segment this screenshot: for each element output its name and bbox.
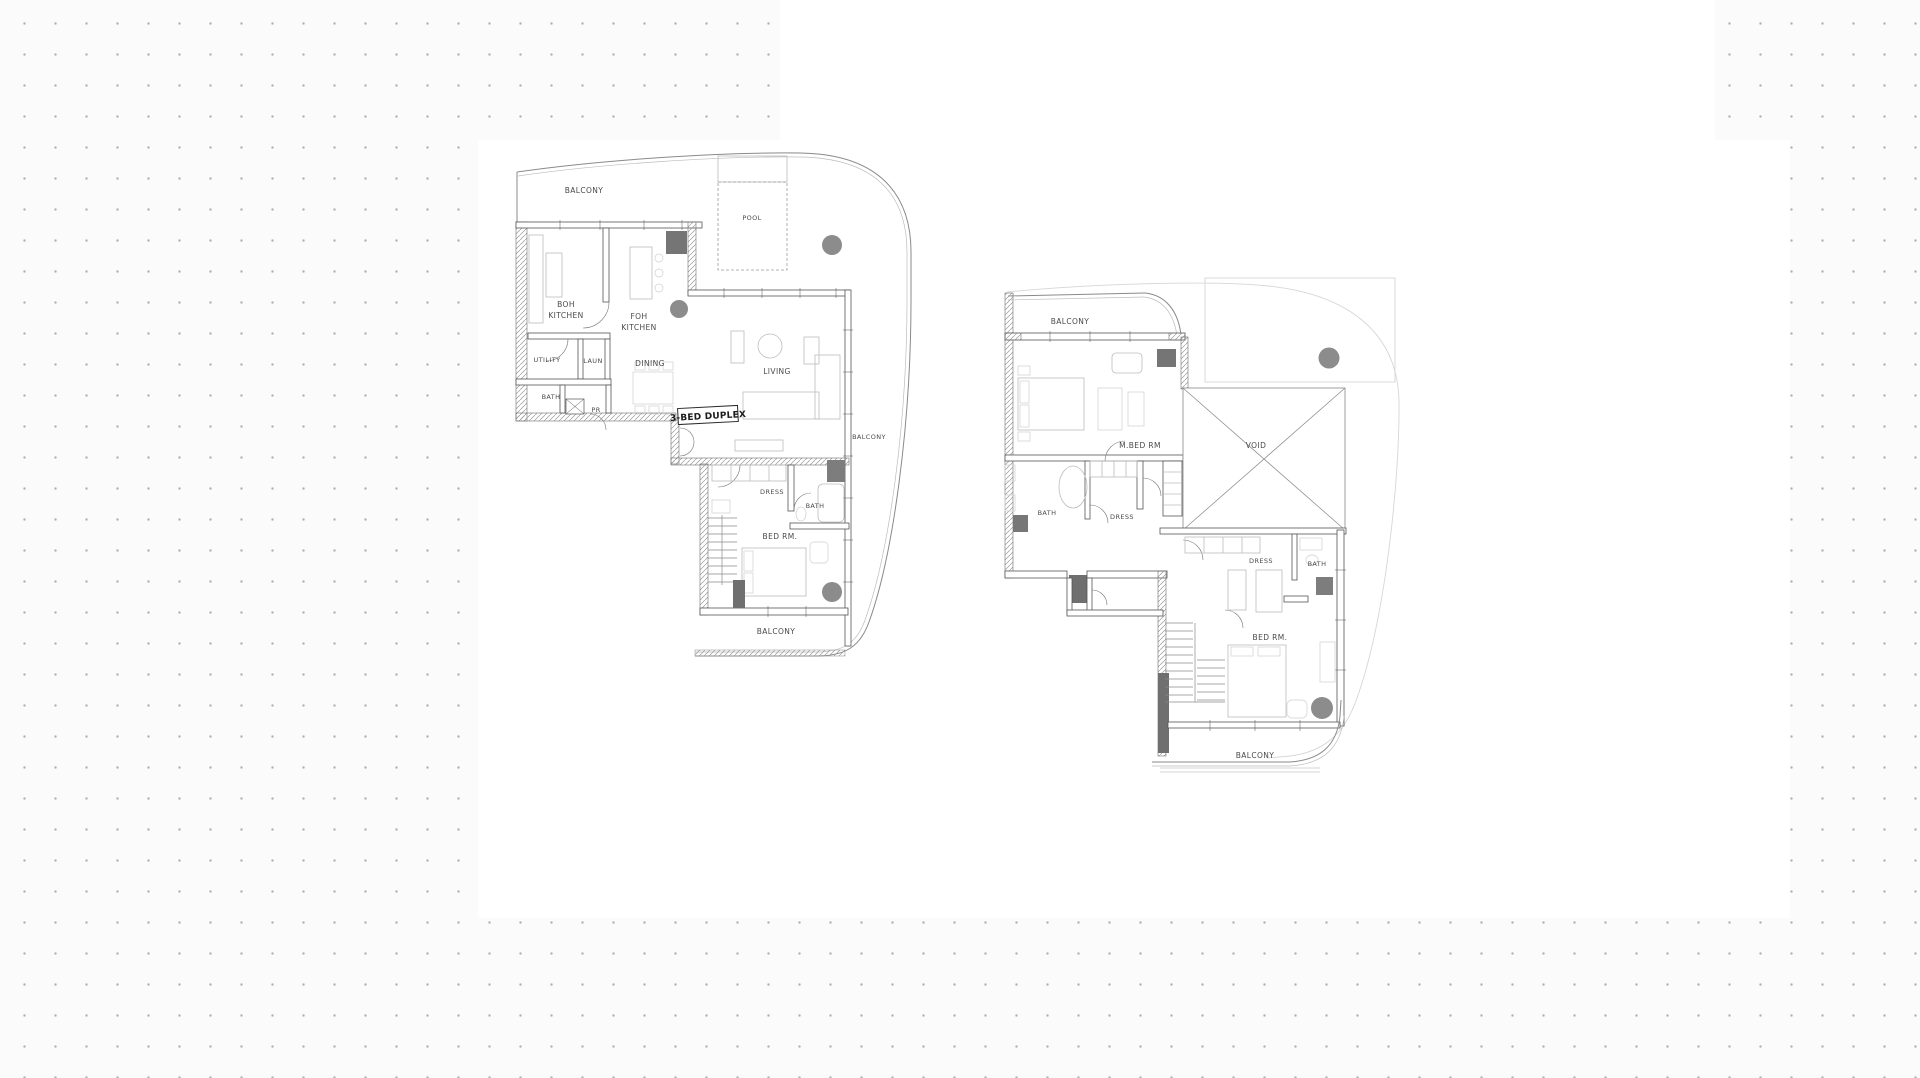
room-label-foh-kitchen-2: KITCHEN xyxy=(621,323,656,332)
room-label-boh-kitchen-1: BOH xyxy=(557,300,575,309)
pool-outline xyxy=(718,182,787,270)
shaft-icon xyxy=(566,399,584,414)
room-label-dining: DINING xyxy=(635,359,665,368)
room-label-dress: DRESS xyxy=(1110,513,1134,521)
room-label-utility: UTILITY xyxy=(534,356,561,364)
room-label-pool: POOL xyxy=(742,214,761,222)
room-label-void: VOID xyxy=(1246,441,1267,450)
room-label-bath2: BATH xyxy=(806,502,825,510)
room-label-bath: BATH xyxy=(1038,509,1057,517)
room-label-bed-room: BED RM. xyxy=(763,532,798,541)
column-icon xyxy=(670,300,688,318)
room-label-boh-kitchen-2: KITCHEN xyxy=(548,311,583,320)
column-block xyxy=(666,231,687,254)
room-label-pr: PR xyxy=(591,406,600,414)
room-label-dress: DRESS xyxy=(760,488,784,496)
room-label-balcony-right: BALCONY xyxy=(852,433,886,441)
service-block xyxy=(1158,673,1169,753)
room-label-bath: BATH xyxy=(542,393,561,401)
column-icon xyxy=(1311,697,1333,719)
lower-walls xyxy=(516,220,853,646)
shower-block xyxy=(1316,577,1333,595)
room-label-dress2: DRESS xyxy=(1249,557,1273,565)
upper-balcony-top-edge xyxy=(1008,293,1181,336)
room-label-balcony-top: BALCONY xyxy=(565,186,604,195)
plan-sheet-top xyxy=(780,0,1715,148)
floorplan-lower-level: BALCONY POOL BOH KITCHEN FOH KITCHEN UTI… xyxy=(495,135,925,675)
stairs-icon xyxy=(708,515,745,608)
room-label-foh-kitchen-1: FOH xyxy=(630,312,647,321)
void-area xyxy=(1183,388,1345,530)
pool-deck xyxy=(718,156,842,270)
room-label-bed-room: BED RM. xyxy=(1253,633,1288,642)
room-label-laundry: LAUN xyxy=(583,357,602,365)
column-icon xyxy=(822,235,842,255)
column-icon xyxy=(1319,348,1340,369)
column-block xyxy=(1157,349,1176,367)
room-label-bath2: BATH xyxy=(1308,560,1327,568)
shower-block xyxy=(1013,515,1028,532)
stairs-icon xyxy=(1165,623,1225,702)
room-label-balcony-bottom: BALCONY xyxy=(757,627,796,636)
room-label-balcony-bottom: BALCONY xyxy=(1236,751,1275,760)
unit-tag: 3-BED DUPLEX xyxy=(669,405,746,425)
floorplan-upper-level: BALCONY M.BED RM VOID BATH DRESS DRESS B… xyxy=(995,265,1435,790)
column-icon xyxy=(822,582,842,602)
room-label-balcony-top: BALCONY xyxy=(1051,317,1090,326)
room-label-living: LIVING xyxy=(763,367,791,376)
room-label-master-bed-room: M.BED RM xyxy=(1119,441,1161,450)
shower-block xyxy=(827,460,845,482)
